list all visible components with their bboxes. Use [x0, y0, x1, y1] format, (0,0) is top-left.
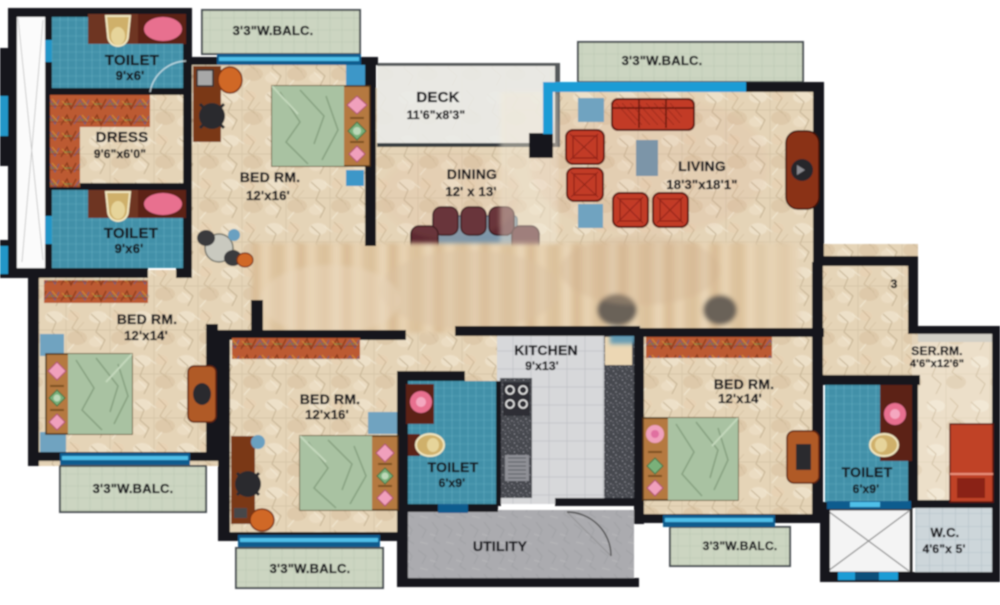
svg-text:BED RM.: BED RM.: [240, 169, 301, 185]
svg-text:TOILET: TOILET: [428, 459, 479, 475]
svg-text:11'6"x8'3": 11'6"x8'3": [407, 108, 465, 122]
svg-text:3'3"W.BALC.: 3'3"W.BALC.: [93, 481, 174, 496]
svg-text:3'3"W.BALC.: 3'3"W.BALC.: [233, 23, 314, 38]
svg-text:6'x9': 6'x9': [439, 476, 466, 490]
svg-text:6'x9': 6'x9': [853, 482, 880, 496]
svg-text:3'3"W.BALC.: 3'3"W.BALC.: [270, 561, 351, 576]
svg-text:3'3"W.BALC.: 3'3"W.BALC.: [622, 53, 703, 68]
svg-text:12'x14': 12'x14': [124, 328, 168, 343]
svg-text:TOILET: TOILET: [105, 52, 159, 69]
svg-text:DRESS: DRESS: [96, 129, 149, 146]
svg-text:LIVING: LIVING: [678, 158, 726, 174]
svg-text:4'6"x12'6": 4'6"x12'6": [910, 358, 964, 370]
svg-text:9'6"x6'0": 9'6"x6'0": [94, 147, 146, 161]
svg-text:12' x 13': 12' x 13': [445, 184, 496, 199]
svg-text:12'x14': 12'x14': [718, 391, 762, 406]
svg-text:TOILET: TOILET: [104, 225, 158, 242]
svg-text:KITCHEN: KITCHEN: [514, 342, 578, 358]
svg-text:UTILITY: UTILITY: [473, 538, 528, 554]
svg-text:BED RM.: BED RM.: [117, 311, 178, 327]
svg-text:12'x16': 12'x16': [305, 407, 349, 422]
svg-text:SER.RM.: SER.RM.: [911, 344, 962, 358]
svg-text:BED RM.: BED RM.: [300, 391, 361, 407]
svg-text:3'3"W.BALC.: 3'3"W.BALC.: [703, 539, 778, 553]
svg-text:9'x13': 9'x13': [525, 359, 559, 373]
svg-text:12'x16': 12'x16': [246, 188, 290, 203]
svg-text:3: 3: [891, 277, 898, 291]
svg-text:DECK: DECK: [416, 89, 459, 106]
svg-text:4'6"x 5': 4'6"x 5': [922, 542, 965, 556]
svg-text:BED RM.: BED RM.: [714, 376, 775, 392]
svg-text:9'x6': 9'x6': [115, 241, 144, 256]
svg-text:9'x6': 9'x6': [116, 68, 145, 83]
svg-text:DINING: DINING: [447, 166, 497, 182]
svg-text:18'3"x18'1": 18'3"x18'1": [666, 177, 737, 192]
svg-text:TOILET: TOILET: [842, 464, 893, 480]
svg-text:W.C.: W.C.: [931, 525, 960, 540]
